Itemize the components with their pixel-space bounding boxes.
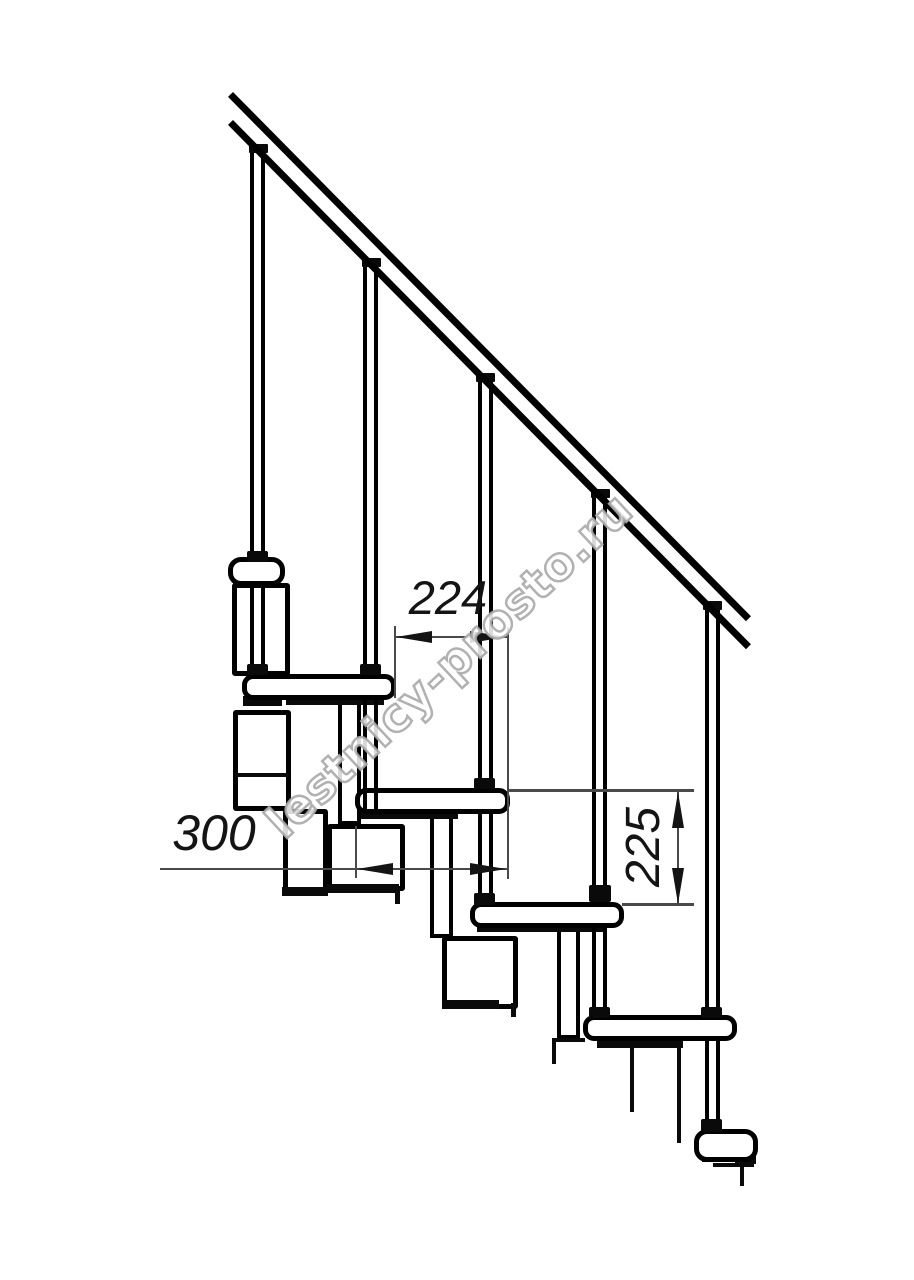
staircase-technical-drawing: 224 300 225 lestnicy-prosto.ru xyxy=(0,0,914,1280)
watermark: lestnicy-prosto.ru xyxy=(0,0,914,1280)
watermark-text: lestnicy-prosto.ru xyxy=(255,482,643,849)
